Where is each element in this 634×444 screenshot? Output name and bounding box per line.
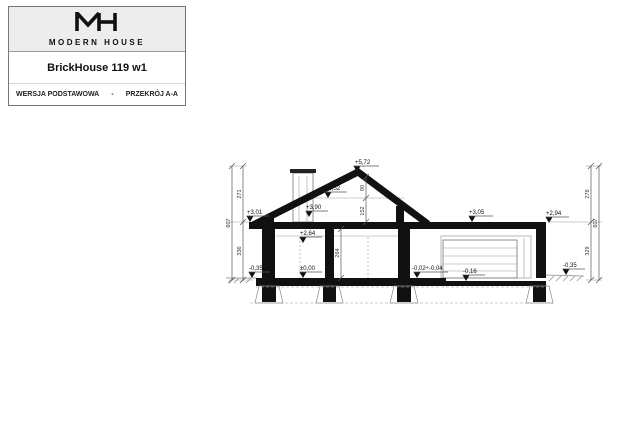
foundations bbox=[250, 286, 553, 303]
svg-text:264: 264 bbox=[335, 248, 341, 257]
svg-text:+2,94: +2,94 bbox=[546, 211, 562, 217]
svg-text:+3,90: +3,90 bbox=[306, 205, 322, 211]
svg-text:+3,05: +3,05 bbox=[469, 210, 485, 216]
level-marker-collar: +4,52 bbox=[325, 186, 348, 198]
svg-text:271: 271 bbox=[237, 189, 243, 198]
svg-text:278: 278 bbox=[585, 189, 591, 198]
svg-text:-0,16: -0,16 bbox=[463, 269, 477, 275]
svg-text:-0,35: -0,35 bbox=[563, 263, 577, 269]
level-marker-garage-roof: +3,05 bbox=[469, 210, 494, 222]
svg-text:-0,35: -0,35 bbox=[249, 266, 263, 272]
knee-wall-right bbox=[396, 206, 404, 222]
svg-text:90: 90 bbox=[360, 185, 366, 191]
svg-text:607: 607 bbox=[226, 218, 232, 227]
svg-text:-0,02÷-0,04: -0,02÷-0,04 bbox=[412, 266, 443, 272]
level-marker-floor: ±0,00 bbox=[300, 266, 323, 278]
floor-slab bbox=[256, 278, 446, 286]
svg-text:+5,72: +5,72 bbox=[355, 160, 371, 166]
svg-text:+4,52: +4,52 bbox=[325, 186, 341, 192]
svg-text:+3,01: +3,01 bbox=[247, 210, 263, 216]
garage-floor-slab bbox=[446, 281, 546, 286]
ceiling-slab bbox=[249, 222, 546, 229]
dimension-room-height: 264 bbox=[335, 226, 344, 281]
svg-text:329: 329 bbox=[585, 246, 591, 255]
svg-text:607: 607 bbox=[593, 218, 599, 227]
svg-text:±0,00: ±0,00 bbox=[300, 266, 316, 272]
section-drawing: +5,72 +3,01 +3,90 +4,52 +2,64 +3,05 +2,9… bbox=[0, 0, 634, 444]
svg-text:336: 336 bbox=[237, 246, 243, 255]
level-marker-ridge: +5,72 bbox=[354, 160, 380, 172]
svg-text:152: 152 bbox=[360, 206, 366, 215]
svg-text:+2,64: +2,64 bbox=[300, 231, 316, 237]
garage-door bbox=[441, 236, 531, 278]
dimension-left: 271 336 607 bbox=[226, 163, 253, 283]
level-marker-roof-at-chimney: +3,90 bbox=[306, 205, 329, 217]
level-marker-grade-right: -0,35 bbox=[563, 263, 586, 275]
level-marker-garage-roof-edge: +2,94 bbox=[546, 211, 570, 223]
level-marker-ceiling: +2,64 bbox=[300, 231, 323, 243]
